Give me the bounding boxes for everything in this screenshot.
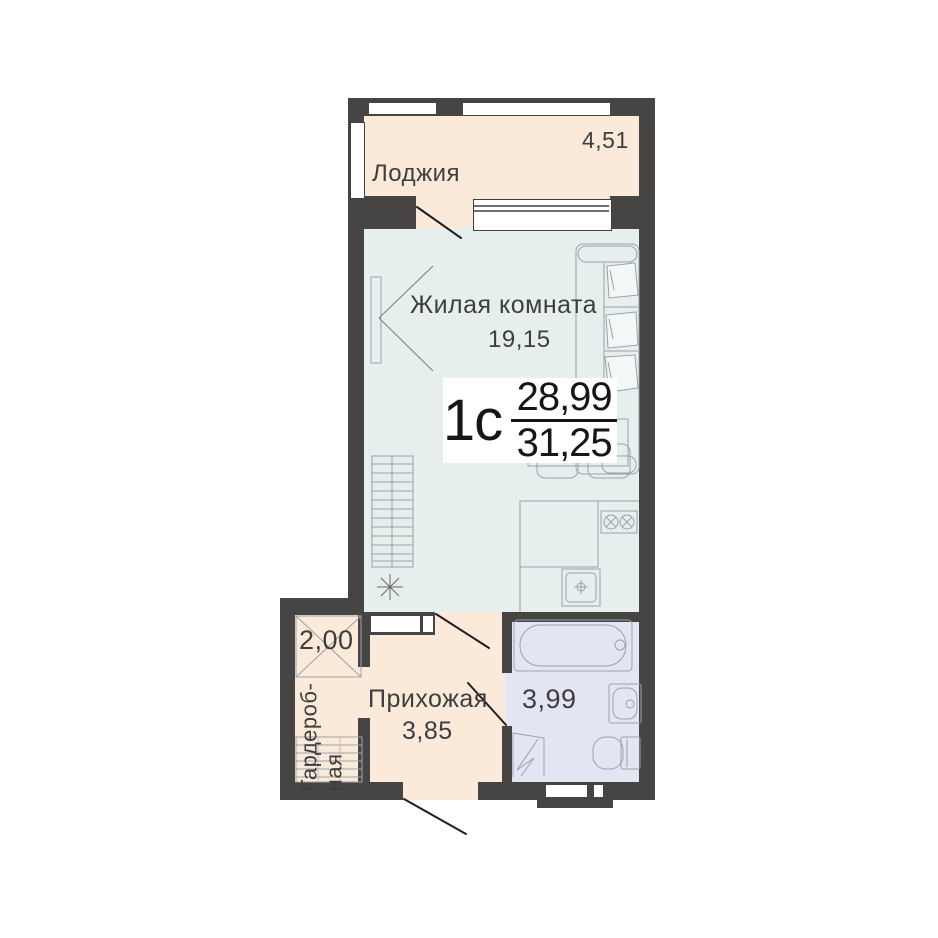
title-block: 1с 28,99 31,25 xyxy=(443,378,617,463)
area-fraction: 28,99 31,25 xyxy=(511,379,617,462)
window-top-left xyxy=(369,103,436,114)
window-loggia-living xyxy=(473,199,612,231)
door-swing-entrance xyxy=(404,799,466,834)
window-loggia-side xyxy=(350,122,365,199)
wall-wardrobe-stub-top xyxy=(358,612,370,667)
unit-type: 1с xyxy=(443,392,502,450)
living-room-area: 19,15 xyxy=(488,326,551,354)
vent-opening-large xyxy=(546,785,587,797)
wall-bottom-mid xyxy=(478,782,537,800)
hallway-label: Прихожая xyxy=(368,685,488,714)
wall-bathroom-top xyxy=(502,612,642,622)
wall-wardrobe-stub-bottom xyxy=(358,718,370,782)
floor-plan: Лоджия 4,51 Жилая комната 19,15 2,00 Гар… xyxy=(0,0,938,938)
wardrobe-label-line1: Гардероб- xyxy=(297,683,322,792)
wardrobe-label: Гардероб- ная xyxy=(297,683,348,792)
living-area-total: 28,99 xyxy=(517,379,612,416)
vent-opening-small xyxy=(594,785,603,797)
wardrobe-label-line2: ная xyxy=(322,683,347,792)
bathroom-area: 3,99 xyxy=(522,684,577,715)
wardrobe-area: 2,00 xyxy=(299,625,354,656)
wall-loggia-separator-left xyxy=(348,196,416,229)
door-jamb-hallway xyxy=(423,616,433,632)
loggia-area: 4,51 xyxy=(582,127,629,154)
total-area: 31,25 xyxy=(517,425,612,462)
wall-bathroom-stub-top xyxy=(502,612,512,673)
living-room-label: Жилая комната xyxy=(410,291,597,320)
wall-right xyxy=(639,98,655,800)
wall-loggia-separator-right xyxy=(610,196,640,229)
hallway-area: 3,85 xyxy=(402,717,453,746)
loggia-label: Лоджия xyxy=(372,160,460,188)
wall-bathroom-stub-bottom xyxy=(502,726,512,782)
wall-bottom-right xyxy=(613,782,655,800)
wall-block-left xyxy=(280,598,295,800)
door-leaf-hallway xyxy=(371,616,420,632)
window-top-right xyxy=(463,103,610,115)
